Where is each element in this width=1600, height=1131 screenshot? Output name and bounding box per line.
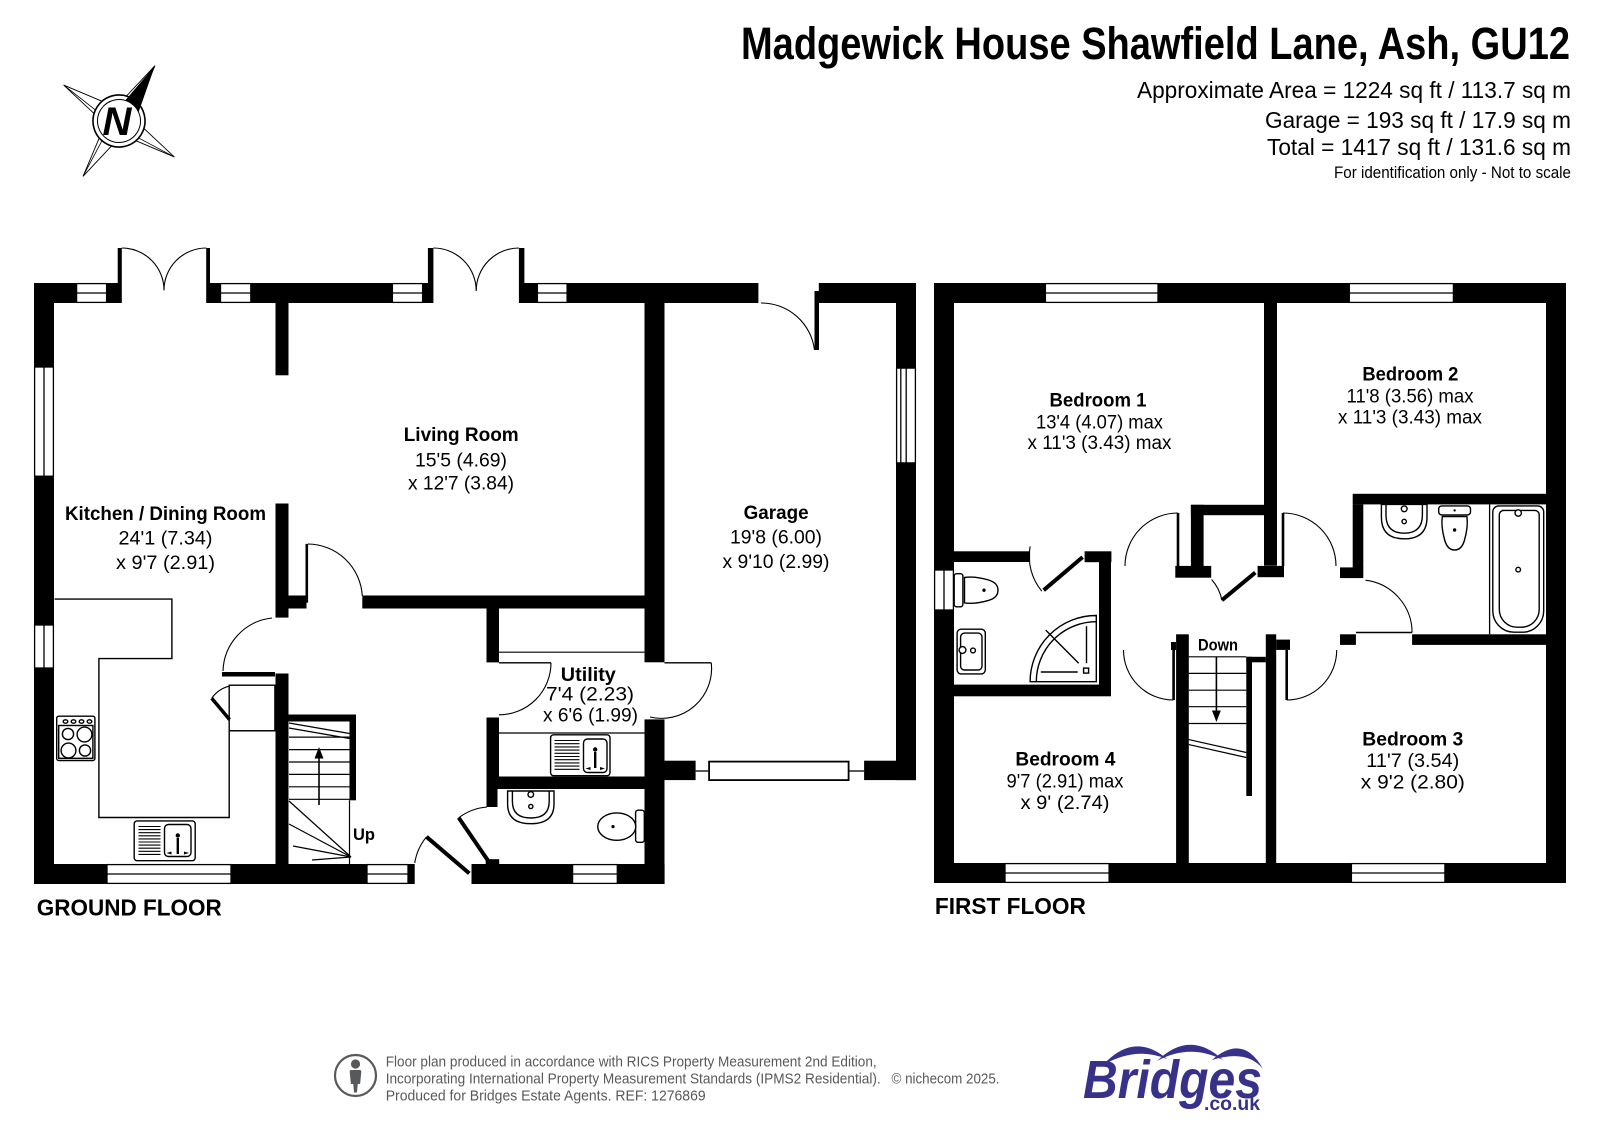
- svg-text:FIRST FLOOR: FIRST FLOOR: [935, 893, 1086, 919]
- svg-text:11'7 (3.54): 11'7 (3.54): [1366, 751, 1459, 772]
- svg-text:7'4 (2.23): 7'4 (2.23): [546, 685, 634, 706]
- svg-text:x 12'7 (3.84): x 12'7 (3.84): [408, 474, 514, 495]
- svg-text:11'8 (3.56) max: 11'8 (3.56) max: [1347, 387, 1474, 408]
- svg-text:15'5 (4.69): 15'5 (4.69): [415, 451, 507, 472]
- svg-text:N: N: [103, 100, 133, 144]
- svg-text:x 9'10 (2.99): x 9'10 (2.99): [723, 552, 830, 573]
- svg-text:9'7 (2.91) max: 9'7 (2.91) max: [1007, 772, 1124, 793]
- svg-text:GROUND FLOOR: GROUND FLOOR: [37, 895, 222, 921]
- svg-text:Produced for Bridges Estate Ag: Produced for Bridges Estate Agents. REF:…: [386, 1088, 706, 1105]
- svg-text:x 9'2 (2.80): x 9'2 (2.80): [1361, 773, 1465, 794]
- svg-text:Bedroom 4: Bedroom 4: [1015, 750, 1115, 771]
- svg-text:Living Room: Living Room: [404, 425, 519, 446]
- svg-text:24'1 (7.34): 24'1 (7.34): [119, 529, 213, 550]
- svg-text:Up: Up: [353, 826, 375, 844]
- svg-text:For identification only - Not: For identification only - Not to scale: [1334, 163, 1571, 182]
- svg-text:© nichecom 2025.: © nichecom 2025.: [892, 1071, 1000, 1088]
- svg-text:Madgewick House Shawfield Lane: Madgewick House Shawfield Lane, Ash, GU1…: [741, 18, 1570, 69]
- svg-text:Utility: Utility: [561, 665, 616, 686]
- svg-text:Approximate Area = 1224 sq ft: Approximate Area = 1224 sq ft / 113.7 sq…: [1137, 77, 1571, 103]
- svg-text:x 9' (2.74): x 9' (2.74): [1021, 793, 1110, 814]
- svg-text:19'8 (6.00): 19'8 (6.00): [730, 528, 822, 549]
- svg-text:Bedroom 2: Bedroom 2: [1362, 365, 1458, 386]
- svg-text:x 11'3 (3.43) max: x 11'3 (3.43) max: [1028, 433, 1172, 454]
- svg-text:Garage = 193 sq ft / 17.9 sq m: Garage = 193 sq ft / 17.9 sq m: [1265, 107, 1571, 133]
- svg-text:Kitchen / Dining Room: Kitchen / Dining Room: [65, 504, 266, 525]
- svg-text:x 9'7 (2.91): x 9'7 (2.91): [116, 553, 215, 574]
- svg-text:Total = 1417 sq ft / 131.6 sq: Total = 1417 sq ft / 131.6 sq m: [1267, 134, 1571, 160]
- svg-text:x 11'3 (3.43) max: x 11'3 (3.43) max: [1338, 408, 1482, 429]
- svg-text:.co.uk: .co.uk: [1204, 1093, 1260, 1115]
- svg-text:Down: Down: [1198, 637, 1238, 655]
- svg-text:Garage: Garage: [744, 503, 809, 524]
- svg-text:13'4 (4.07) max: 13'4 (4.07) max: [1036, 413, 1163, 434]
- svg-text:x 6'6 (1.99): x 6'6 (1.99): [543, 706, 638, 727]
- svg-text:Floor plan produced in accorda: Floor plan produced in accordance with R…: [386, 1054, 877, 1071]
- svg-text:Bedroom 1: Bedroom 1: [1050, 391, 1147, 412]
- svg-text:Bedroom 3: Bedroom 3: [1362, 730, 1463, 751]
- svg-text:Incorporating International Pr: Incorporating International Property Mea…: [386, 1071, 881, 1088]
